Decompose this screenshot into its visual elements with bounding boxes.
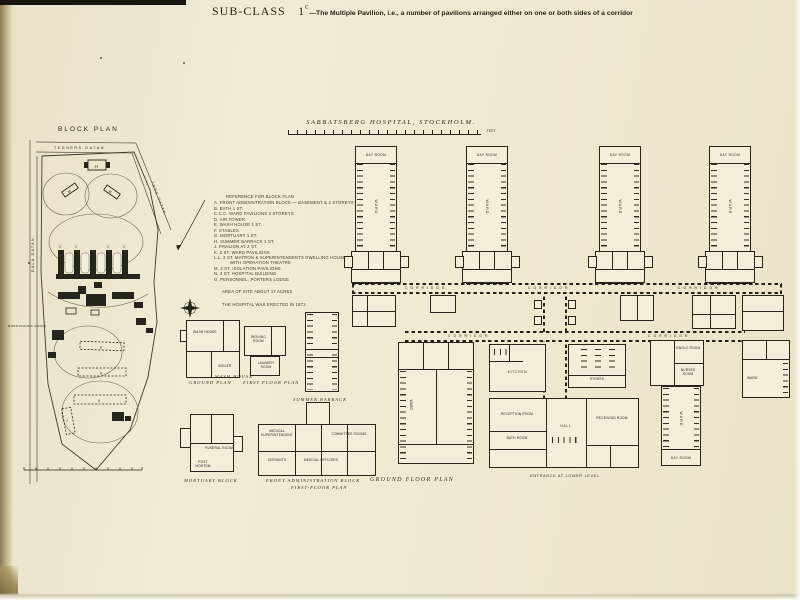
ward-label: WARD — [679, 411, 683, 426]
single-room-label: SINGLE ROOM — [675, 347, 701, 351]
wash-house-first-floor-wing: LAUNDRY ROOM — [250, 356, 280, 376]
lower-ward-pavilion: WARD — [398, 342, 474, 464]
ward-label: WARD — [618, 199, 622, 214]
site-boundary — [41, 152, 158, 470]
pavilion-service-annex — [462, 251, 512, 283]
ward-label: WARD — [747, 377, 757, 381]
funeral-room-label: FUNERAL ROOM — [205, 447, 233, 451]
wall-line — [610, 445, 611, 467]
bed-ticks — [400, 371, 406, 461]
wall-line — [399, 444, 473, 445]
summer-barrack-plan — [305, 312, 339, 392]
paper-speck — [100, 57, 102, 59]
nurses-block: SINGLE ROOM NURSES ROOM — [650, 340, 704, 386]
wall-line — [321, 425, 322, 475]
nurses-room-label: NURSES ROOM — [675, 369, 701, 376]
wall-line — [693, 314, 735, 315]
wall-line — [271, 327, 272, 355]
pavilion-service-annex — [705, 251, 755, 283]
mortuary-wing — [180, 428, 191, 448]
wall-line — [211, 415, 212, 443]
day-room: DAY ROOM — [356, 147, 396, 164]
compass-rose-icon — [180, 298, 200, 318]
wall-line — [353, 311, 395, 312]
boiler-label: BOILER — [213, 365, 237, 369]
building-h: H — [84, 160, 110, 170]
wall-line — [259, 451, 375, 452]
wc-tower — [400, 256, 409, 268]
wall-line — [223, 321, 224, 351]
wall-line — [436, 369, 437, 445]
entrance-note: ENTRANCE AT LOWER LEVEL — [505, 474, 625, 478]
wc-tower — [644, 256, 653, 268]
subclass-label: SUB-CLASS — [212, 4, 286, 18]
wash-house-ground-plan: WASH HOUSE BOILER — [186, 320, 240, 378]
street-name-top: TEGNERS GATAN — [54, 146, 105, 150]
pavilion-service-annex — [595, 251, 645, 283]
corridor-annex-block — [352, 295, 396, 327]
scan-edge-top — [0, 0, 186, 5]
bath-room-label: BATH ROOM — [492, 437, 542, 441]
svg-text:A: A — [94, 298, 97, 303]
street-lines — [30, 140, 171, 484]
stores-label: STORES — [569, 378, 625, 382]
page-bottom-edge — [0, 593, 800, 600]
wash-house-porch — [180, 330, 187, 342]
legend-line: REFERENCE FOR BLOCK PLAN — [214, 194, 364, 199]
reception-room-label: RECEPTION ROOM — [492, 413, 542, 417]
legend-line: O. PERSONNEL, PORTERS LODGE — [214, 277, 364, 282]
building-m-left: M — [62, 183, 79, 197]
wall-line — [743, 311, 783, 312]
day-room: DAY ROOM — [600, 147, 640, 164]
east-ward-block: WARD — [742, 340, 790, 398]
admin-block-plan: MEDICAL SUPERINTENDENT COMMITTEE ROOMS S… — [258, 424, 376, 476]
corridor-buttress — [534, 316, 542, 325]
lower-ward-pavilion: WARD DAY ROOM — [661, 386, 701, 466]
laundry-room-label: LAUNDRY ROOM — [252, 362, 280, 369]
mortuary-plan: FUNERAL ROOM POST MORTEM — [190, 414, 234, 472]
hall-label: HALL — [548, 425, 584, 429]
first-floor-plan-caption: FIRST FLOOR PLAN — [243, 380, 299, 385]
day-room: DAY ROOM — [710, 147, 750, 164]
wall-line — [637, 296, 638, 320]
shelving-hatch — [609, 349, 615, 371]
plate-subtitle: —The Multiple Pavilion, i.e., a number o… — [309, 10, 633, 17]
bed-ticks — [783, 363, 789, 395]
admin-cluster: B D A C C — [58, 282, 134, 315]
corridor-annex-block — [430, 295, 456, 313]
wall-line — [211, 351, 212, 377]
wc-tower — [511, 256, 520, 268]
corridor-label: CORRIDOR — [528, 286, 570, 290]
wall-line — [586, 399, 587, 467]
ward-pavilion: DAY ROOM WARD — [709, 146, 751, 284]
legend-area-note: AREA OF SITE ABOUT 17 ACRES — [214, 289, 364, 294]
receiving-room-label: RECEIVING ROOM — [588, 417, 636, 421]
stair-hatch — [552, 437, 580, 443]
bed-ticks — [467, 371, 473, 461]
svg-text:C: C — [123, 245, 126, 249]
svg-text:E: E — [148, 329, 150, 333]
admin-portico — [306, 402, 330, 426]
ward-pavilion-row: C C C C — [56, 245, 140, 279]
ward-with-beds: WARD — [710, 163, 750, 251]
main-scale-bar: FEET — [288, 130, 481, 135]
ward-label: WARD — [728, 199, 732, 214]
ward-pavilion: DAY ROOM WARD — [599, 146, 641, 284]
wall-line — [295, 425, 296, 475]
wall-line — [706, 269, 754, 270]
svg-text:J: J — [66, 419, 68, 423]
servants-label: SERVANTS — [261, 459, 293, 463]
wall-line — [710, 296, 711, 328]
block-plan-title: BLOCK PLAN — [58, 126, 119, 133]
scale-feet-label: FEET — [487, 129, 496, 133]
corridor-annex-block — [742, 295, 784, 331]
corridor-buttress — [534, 300, 542, 309]
ward-with-beds: WARD — [600, 163, 640, 251]
legend-erected-note: THE HOSPITAL WAS ERECTED IN 1872 — [214, 302, 364, 307]
building-n: N — [112, 412, 131, 421]
ironing-room-label: IRONING ROOM — [246, 336, 271, 343]
ward-pavilion: DAY ROOM WARD — [466, 146, 508, 284]
svg-text:C: C — [59, 245, 62, 249]
wash-house-room-label: WASH HOUSE — [189, 331, 221, 335]
wc-tower — [344, 256, 353, 268]
stores-block: STORES — [568, 344, 626, 388]
ground-plan-caption: GROUND PLAN — [189, 380, 232, 385]
mortuary-wing — [233, 436, 243, 452]
ward-with-beds: WARD — [356, 163, 396, 251]
day-room: DAY ROOM — [467, 147, 507, 164]
plate-title: SUB-CLASS 1c—The Multiple Pavilion, i.e.… — [212, 2, 633, 20]
wc-tower — [588, 256, 597, 268]
svg-text:H: H — [95, 164, 98, 169]
kitchen-label: KITCHEN — [490, 371, 545, 375]
page-right-edge — [794, 0, 800, 600]
corridor-label: CORRIDOR — [405, 286, 447, 290]
corridor-buttress — [568, 300, 576, 309]
corridor-annex-block — [620, 295, 654, 321]
wash-house-first-floor: IRONING ROOM — [244, 326, 286, 356]
wall-line — [490, 449, 546, 450]
shelving-hatch — [595, 349, 601, 371]
building-m-right: M — [104, 185, 121, 199]
wc-tower — [754, 256, 763, 268]
wall-line — [546, 399, 547, 467]
stair-hatch — [494, 349, 508, 355]
wc-tower — [455, 256, 464, 268]
svg-text:C: C — [75, 245, 78, 249]
pavilion-service-annex — [351, 251, 401, 283]
paper-speck — [183, 62, 185, 64]
street-name-left-lower: RORSTRANDS GATAN — [8, 324, 46, 328]
wall-line — [463, 269, 511, 270]
wall-line — [569, 375, 625, 376]
corridor-buttress — [568, 316, 576, 325]
wall-line — [674, 363, 703, 364]
block-plan-scale-bar — [24, 467, 142, 470]
ward-label: WARD — [408, 400, 412, 410]
admin-caption-line1: FRONT ADMINISTRATION BLOCK — [266, 478, 360, 483]
north-arrow — [176, 200, 205, 250]
kitchen-block: KITCHEN — [489, 344, 546, 392]
wall-line — [509, 345, 510, 361]
garden-paths — [43, 173, 148, 443]
wall-line — [448, 343, 449, 369]
wall-line — [191, 443, 233, 444]
wall-line — [490, 431, 546, 432]
ward-with-beds — [306, 313, 338, 391]
wash-house-label: WASH HOUSE — [215, 374, 253, 379]
ground-floor-plan-caption: GROUND FLOOR PLAN — [370, 477, 454, 483]
corridor-end-wall — [780, 283, 782, 294]
outbuildings: G B E F O — [48, 302, 153, 358]
ward-label: WARD — [374, 199, 378, 214]
svg-text:K: K — [100, 346, 103, 350]
wall-line — [586, 445, 638, 446]
svg-text:C: C — [107, 245, 110, 249]
ward-pavilion: DAY ROOM WARD — [355, 146, 397, 284]
svg-text:K: K — [100, 372, 103, 376]
corridor-annex-block — [692, 295, 736, 329]
wall-line — [306, 349, 338, 350]
medical-officers-label: MEDICAL OFFICERS — [299, 459, 343, 463]
svg-text:F: F — [137, 304, 139, 308]
block-plan-legend: REFERENCE FOR BLOCK PLAN A. FRONT ADMINI… — [214, 194, 364, 307]
mortuary-caption: MORTUARY BLOCK — [184, 478, 238, 483]
hospital-title: SABBATSBERG HOSPITAL, STOCKHOLM. — [296, 119, 486, 126]
ward-with-beds: WARD — [467, 163, 507, 251]
committee-rooms-label: COMMITTEE ROOMS — [325, 433, 373, 437]
svg-text:G: G — [56, 335, 59, 339]
wc-tower — [698, 256, 707, 268]
corridor-label: CORRIDOR — [448, 334, 490, 338]
wall-line — [187, 351, 239, 352]
corridor-label: CORRIDOR — [678, 286, 720, 290]
corridor-end-wall — [352, 283, 354, 294]
ward-with-beds: WARD — [662, 387, 700, 450]
admin-caption-line2: FIRST-FLOOR PLAN — [291, 485, 347, 490]
wall-line — [352, 269, 400, 270]
wall-line — [490, 361, 523, 362]
svg-text:K: K — [98, 399, 101, 403]
medical-superintendent-label: MEDICAL SUPERINTENDENT — [261, 430, 293, 437]
wall-line — [423, 343, 424, 369]
wall-line — [766, 341, 767, 360]
street-name-left: DALA GATAN — [31, 237, 35, 272]
corridor-label: CORRIDOR — [648, 334, 690, 338]
link-corridor-wall — [543, 294, 545, 332]
entrance-building: RECEPTION ROOM BATH ROOM HALL RECEIVING … — [489, 398, 639, 468]
block-plan: BLOCK PLAN TEGNERS GATAN TORS GATAN DALA… — [8, 112, 208, 494]
post-mortem-label: POST MORTEM — [192, 461, 214, 468]
ward-label: WARD — [485, 199, 489, 214]
wall-line — [306, 357, 338, 358]
shelving-hatch — [581, 349, 587, 371]
wall-line — [596, 269, 644, 270]
day-room: DAY ROOM — [662, 449, 700, 465]
scanned-plate: SUB-CLASS 1c—The Multiple Pavilion, i.e.… — [0, 0, 800, 600]
